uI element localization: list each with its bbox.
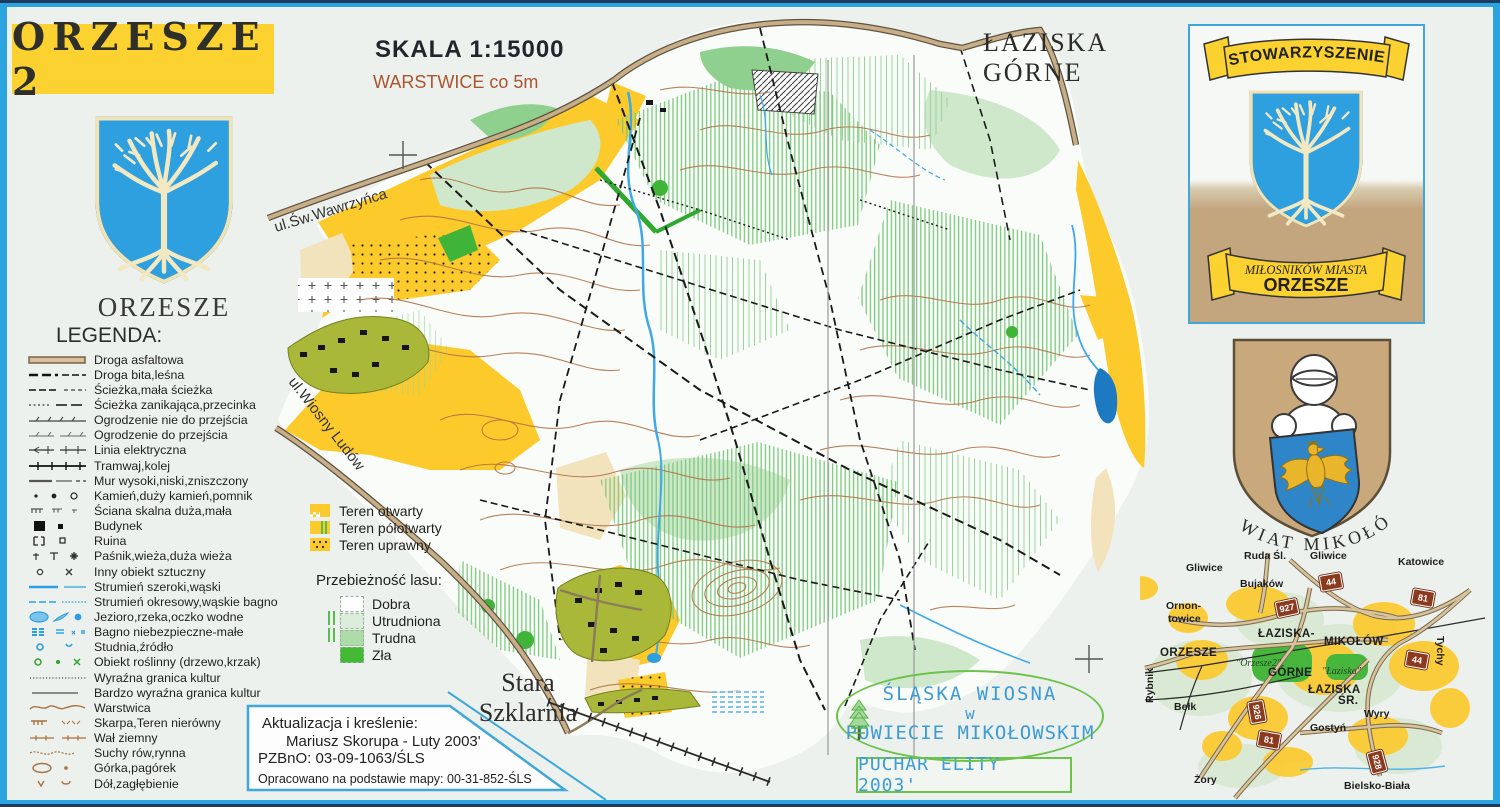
legend-item: Wyraźna granica kultur	[28, 670, 278, 685]
legend-item: Inny obiekt sztuczny	[28, 564, 278, 579]
minimap-town-label: ŁAZISKA-	[1258, 628, 1315, 640]
wall-icon	[28, 473, 94, 489]
scarp-icon	[28, 715, 94, 731]
runnability-item: Utrudniona	[340, 612, 442, 629]
legend-item: Strumień okresowy,wąskie bagno	[28, 594, 278, 609]
legend-item-label: Bardzo wyraźna granica kultur	[94, 686, 261, 700]
legend-item-label: Dół,zagłębienie	[94, 777, 179, 791]
legend-item-label: Linia elektryczna	[94, 443, 186, 457]
legend-list: Droga asfaltowaDroga bita,leśnaŚcieżka,m…	[28, 352, 278, 791]
legend-item-label: Mur wysoki,niski,zniszczony	[94, 474, 248, 488]
terrain-label: Teren uprawny	[339, 537, 431, 553]
map-title: ORZESZE 2	[12, 14, 274, 104]
legend-item-label: Warstwica	[94, 701, 151, 715]
rock-face-icon	[28, 503, 94, 519]
location-minimap: GliwiceRuda Śl.GliwiceKatowiceBujakówOrn…	[1140, 548, 1492, 800]
minimap-town-label: GÓRNE	[1268, 667, 1312, 679]
waterbody-icon	[28, 609, 94, 625]
title-banner: ORZESZE 2	[12, 24, 274, 94]
runnability-label: Trudna	[372, 630, 416, 646]
association-badge-panel: STOWARZYSZENIE MIŁOSNIKÓW MIASTA ORZESZE	[1188, 24, 1425, 324]
ribbon-bottom: MIŁOSNIKÓW MIASTA ORZESZE	[1200, 238, 1413, 310]
terrain-legend: Teren otwartyTeren półotwartyTeren upraw…	[310, 502, 442, 553]
earth-wall-icon	[28, 730, 94, 746]
power-line-icon	[28, 442, 94, 458]
legend-item: Budynek	[28, 519, 278, 534]
terrain-swatch-open	[310, 504, 330, 517]
runnability-label: Dobra	[372, 596, 410, 612]
orzesze-coat-of-arms	[90, 112, 238, 288]
knoll-icon	[28, 760, 94, 776]
legend-item-label: Obiekt roślinny (drzewo,krzak)	[94, 655, 261, 669]
minimap-town-label: "Łaziska"	[1322, 666, 1361, 677]
legend-item: Warstwica	[28, 700, 278, 715]
legend-item: Droga asfaltowa	[28, 352, 278, 367]
ribbon-top: STOWARZYSZENIE	[1200, 34, 1413, 86]
minimap-canvas	[1140, 548, 1492, 800]
road-dirt-icon	[28, 367, 94, 383]
village-label-stara-szklarnia: Stara Szklarnia	[448, 668, 608, 728]
well-icon	[28, 639, 94, 655]
legend-item-label: Ścieżka,mała ścieżka	[94, 383, 212, 397]
dry-ditch-icon	[28, 745, 94, 761]
legend-item: Bardzo wyraźna granica kultur	[28, 685, 278, 700]
svg-text:Mariusz Skorupa - Luty 2003': Mariusz Skorupa - Luty 2003'	[286, 733, 481, 750]
legend-item-label: Ruina	[94, 534, 126, 548]
minimap-town-label: towice	[1168, 613, 1201, 625]
hatched-area	[752, 70, 818, 114]
tree-icon	[846, 698, 872, 742]
runnability-legend: Przebieżność lasu: DobraUtrudnionaTrudna…	[316, 572, 442, 663]
terrain-swatch-cultivated	[310, 538, 330, 551]
legend-item: Bagno niebezpieczne-małe	[28, 625, 278, 640]
legend-item: Kamień,duży kamień,pomnik	[28, 488, 278, 503]
minimap-town-label: Gostyń	[1310, 722, 1346, 734]
minimap-town-label: Bielsko-Biała	[1344, 780, 1410, 792]
runnability-swatch	[340, 647, 364, 663]
legend-item-label: Ogrodzenie nie do przejścia	[94, 413, 248, 427]
legend-item-label: Strumień okresowy,wąskie bagno	[94, 595, 278, 609]
terrain-legend-item: Teren półotwarty	[310, 519, 442, 536]
legend-item: Skarpa,Teren nierówny	[28, 715, 278, 730]
legend-item: Droga bita,leśna	[28, 367, 278, 382]
veg-boundary-strong-icon	[28, 685, 94, 701]
legend-title: LEGENDA:	[56, 324, 162, 348]
scale-label: SKALA 1:15000	[375, 36, 565, 64]
legend-item: Tramwaj,kolej	[28, 458, 278, 473]
path-vanishing-icon	[28, 397, 94, 413]
minimap-town-label: Bełk	[1174, 701, 1196, 713]
cup-label: PUCHAR ELITY 2003'	[856, 757, 1072, 793]
stamp-line-3: POWIECIE MIKOŁOWSKIM	[838, 722, 1102, 744]
legend-item-label: Ściana skalna duża,mała	[94, 504, 232, 518]
map-sheet: ul.Św.Wawrzyńca ul.Wiosny Ludów Aktualiz…	[0, 0, 1500, 807]
legend-item-label: Wał ziemny	[94, 731, 158, 745]
runnability-label: Utrudniona	[372, 613, 441, 629]
legend-item-label: Tramwaj,kolej	[94, 459, 170, 473]
pit-icon	[28, 776, 94, 792]
man-made-icon	[28, 564, 94, 580]
marsh-area	[712, 688, 764, 714]
ruin-icon	[28, 533, 94, 549]
svg-text:Opracowano na podstawie mapy:: Opracowano na podstawie mapy: 00-31-852-…	[258, 771, 532, 786]
fence-impassable-icon	[28, 412, 94, 428]
stamp-line-2: w	[838, 705, 1102, 722]
frame-top-line	[0, 0, 1500, 3]
minimap-town-label: Tychy	[1434, 636, 1446, 666]
legend-item: Wał ziemny	[28, 731, 278, 746]
legend-item-label: Górka,pagórek	[94, 761, 176, 775]
legend-item: Górka,pagórek	[28, 761, 278, 776]
legend-item: Linia elektryczna	[28, 443, 278, 458]
contour-icon	[28, 700, 94, 716]
minimap-town-label: ORZESZE	[1160, 647, 1217, 659]
legend-item-label: Jezioro,rzeka,oczko wodne	[94, 610, 243, 624]
legend-item: Ściana skalna duża,mała	[28, 503, 278, 518]
legend-item: Dół,zagłębienie	[28, 776, 278, 791]
runnability-item: Dobra	[340, 595, 442, 612]
minimap-town-label: Bujaków	[1240, 578, 1283, 590]
veg-boundary-icon	[28, 670, 94, 686]
runnability-swatch	[340, 630, 364, 646]
building-icon	[28, 518, 94, 534]
legend-item-label: Kamień,duży kamień,pomnik	[94, 489, 252, 503]
runnability-item: Trudna	[340, 629, 442, 646]
legend-item-label: Wyraźna granica kultur	[94, 671, 221, 685]
minimap-town-label: MIKOŁÓW	[1324, 636, 1384, 648]
legend-item: Studnia,źródło	[28, 640, 278, 655]
legend-item-label: Bagno niebezpieczne-małe	[94, 625, 243, 639]
path-icon	[28, 382, 94, 398]
terrain-label: Teren półotwarty	[339, 520, 442, 536]
minimap-town-label: Gliwice	[1186, 562, 1223, 574]
vegetation-icon	[28, 654, 94, 670]
runnability-swatch	[340, 596, 364, 612]
runnability-swatch	[340, 613, 364, 629]
railway-icon	[28, 458, 94, 474]
minimap-town-label: Żory	[1194, 774, 1217, 786]
powiat-mikolow-crest: POWIAT MIKOŁÓW	[1222, 334, 1402, 559]
legend-item-label: Budynek	[94, 519, 142, 533]
minimap-town-label: Katowice	[1398, 556, 1444, 568]
association-shield	[1245, 88, 1367, 230]
legend-item-label: Paśnik,wieża,duża wieża	[94, 549, 232, 563]
runnability-label: Zła	[372, 647, 391, 663]
terrain-legend-item: Teren uprawny	[310, 536, 442, 553]
green-stripes-icon	[326, 627, 338, 648]
runnability-item: Zła	[340, 646, 442, 663]
event-stamp: ŚLĄSKA WIOSNA w POWIECIE MIKOŁOWSKIM	[836, 670, 1104, 762]
legend-item: Suchy rów,rynna	[28, 746, 278, 761]
minimap-town-label: ŚR.	[1338, 695, 1358, 707]
marsh-icon	[28, 624, 94, 640]
pond	[647, 653, 661, 663]
legend-item: Ruina	[28, 534, 278, 549]
legend-item-label: Ścieżka zanikająca,przecinka	[94, 398, 256, 412]
towers-icon	[28, 548, 94, 564]
svg-text:Aktualizacja i kreślenie:: Aktualizacja i kreślenie:	[262, 715, 418, 732]
legend-item-label: Strumień szeroki,wąski	[94, 580, 221, 594]
legend-item: Ścieżka zanikająca,przecinka	[28, 397, 278, 412]
legend-item: Obiekt roślinny (drzewo,krzak)	[28, 655, 278, 670]
minimap-town-label: Rybnik	[1144, 668, 1156, 703]
legend-item: Mur wysoki,niski,zniszczony	[28, 473, 278, 488]
terrain-legend-item: Teren otwarty	[310, 502, 442, 519]
city-label-laziska-gorne: ŁAZISKA GÓRNE	[983, 28, 1108, 88]
legend-item-label: Droga asfaltowa	[94, 353, 184, 367]
fence-passable-icon	[28, 427, 94, 443]
minimap-town-label: Ruda Śl.	[1244, 550, 1286, 562]
terrain-label: Teren otwarty	[339, 503, 423, 519]
coat-of-arms-label: ORZESZE	[64, 292, 264, 323]
cemetery	[298, 278, 394, 312]
legend-item: Jezioro,rzeka,oczko wodne	[28, 609, 278, 624]
minimap-town-label: Gliwice	[1310, 550, 1347, 562]
stream-seasonal-icon	[28, 594, 94, 610]
minimap-town-label: Wyry	[1364, 708, 1390, 720]
legend-item-label: Suchy rów,rynna	[94, 746, 186, 760]
stamp-line-1: ŚLĄSKA WIOSNA	[838, 683, 1102, 705]
runnability-title: Przebieżność lasu:	[316, 572, 442, 589]
legend-item: Ogrodzenie nie do przejścia	[28, 413, 278, 428]
stones-icon	[28, 488, 94, 504]
legend-item-label: Inny obiekt sztuczny	[94, 565, 206, 579]
terrain-swatch-semiopen	[310, 521, 330, 534]
legend-item: Ścieżka,mała ścieżka	[28, 382, 278, 397]
minimap-town-label: Ornon-	[1166, 600, 1201, 612]
contour-interval-label: WARSTWICE co 5m	[373, 72, 538, 93]
legend-item-label: Droga bita,leśna	[94, 368, 184, 382]
legend-item-label: Skarpa,Teren nierówny	[94, 716, 221, 730]
legend-item-label: Ogrodzenie do przejścia	[94, 428, 228, 442]
legend-item: Strumień szeroki,wąski	[28, 579, 278, 594]
stream-icon	[28, 579, 94, 595]
legend-item-label: Studnia,źródło	[94, 640, 173, 654]
svg-text:PZBnO: 03-09-1063/ŚLS: PZBnO: 03-09-1063/ŚLS	[258, 749, 425, 767]
road-asphalt-icon	[28, 352, 94, 368]
legend-item: Ogrodzenie do przejścia	[28, 428, 278, 443]
svg-text:ORZESZE: ORZESZE	[1263, 275, 1348, 295]
legend-item: Paśnik,wieża,duża wieża	[28, 549, 278, 564]
